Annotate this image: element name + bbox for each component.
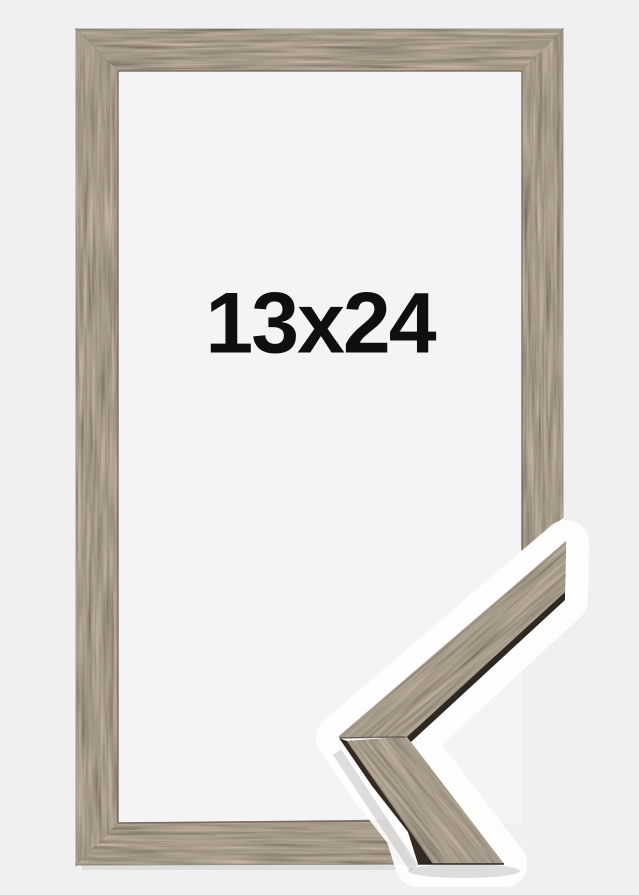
size-label: 13x24: [205, 281, 434, 367]
mitre-seam: [340, 737, 405, 738]
frame-render: [0, 0, 639, 895]
product-photo: 13x24: [0, 0, 639, 895]
corner-shadow-bottom: [408, 864, 520, 878]
